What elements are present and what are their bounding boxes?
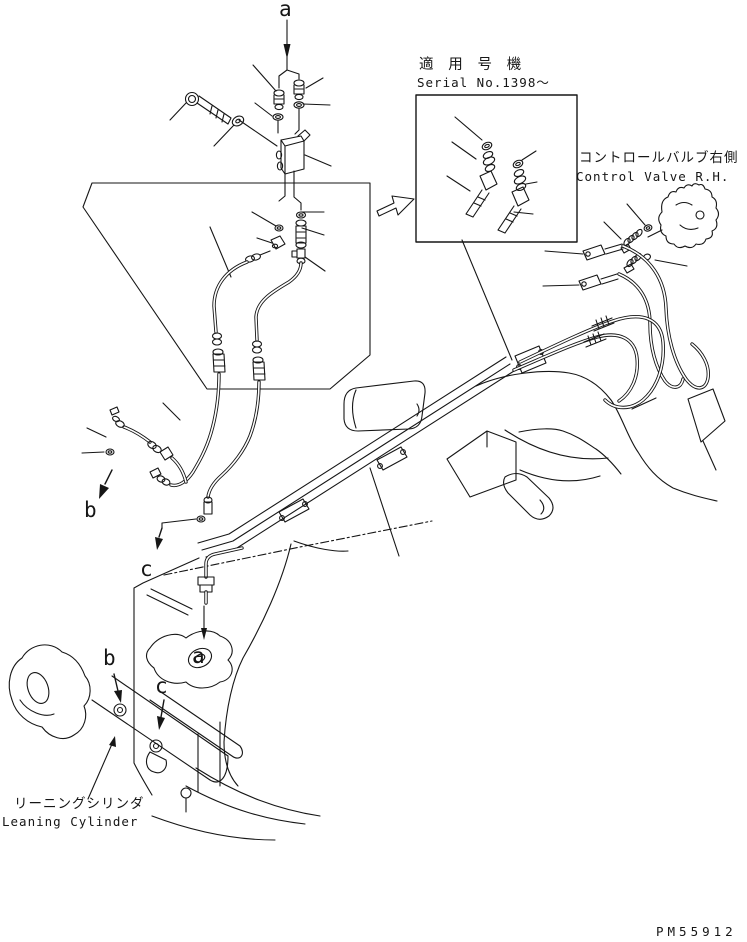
detail-box-fittings (447, 117, 537, 233)
arrow-down-icon (201, 628, 207, 640)
valve-block (239, 120, 331, 174)
machine-frame (134, 240, 725, 795)
serial-note: 適 用 号 機 Serial No.1398〜 (417, 55, 550, 90)
parts-diagram-page: a (0, 0, 747, 942)
arrow-down-icon (284, 44, 291, 59)
control-valve-body (648, 184, 719, 248)
callout-a-bottom-label: a (192, 644, 205, 668)
tube-clamp (377, 447, 407, 470)
cylinder-port-c (147, 740, 167, 773)
control-valve-label-jp: コントロールバルブ右側 (579, 149, 739, 166)
arrow-icon (157, 716, 165, 730)
hose-cluster (82, 403, 186, 486)
top-callout-a: a (279, 0, 292, 70)
detail-box (416, 95, 577, 242)
serial-note-serial-en: Serial No.1398〜 (417, 75, 550, 90)
right-hoses (514, 246, 708, 408)
tube-run (198, 346, 546, 557)
serial-note-title-jp: 適 用 号 機 (419, 55, 524, 73)
callout-b-cylinder-label: b (103, 646, 116, 670)
mounting-bolt (170, 93, 245, 147)
control-valve-fittings (543, 204, 687, 290)
arrow-icon (114, 690, 122, 703)
callout-b-cylinder: b (103, 646, 122, 703)
upper-pipe-assembly (253, 65, 330, 134)
callout-c-mid-label: c (140, 557, 153, 581)
parts-diagram-canvas: a (0, 0, 747, 942)
control-valve-label: コントロールバルブ右側 Control Valve R.H. (576, 149, 739, 184)
region-fittings (210, 171, 325, 277)
callout-c-cylinder-label: c (155, 674, 168, 698)
detail-callout-arrow-icon (377, 196, 414, 216)
cylinder-port-b (114, 704, 126, 716)
drawing-number: PM55912 (656, 924, 737, 939)
arrow-icon (109, 736, 116, 747)
callout-c-cylinder: c (155, 674, 168, 730)
arrow-icon (99, 484, 109, 499)
arrow-icon (155, 537, 163, 550)
callout-b-mid: b (84, 470, 112, 522)
elbow-tube-a (198, 548, 242, 603)
callout-a-top-label: a (279, 0, 292, 21)
leaning-cylinder-label-jp: リーニングシリンダ (14, 796, 145, 812)
callout-b-mid-label: b (84, 498, 97, 522)
region-outline (83, 183, 370, 389)
control-valve-label-en: Control Valve R.H. (576, 169, 729, 184)
leaning-cylinder-label-en: Leaning Cylinder (2, 814, 138, 829)
cylinder-label: リーニングシリンダ Leaning Cylinder (2, 736, 145, 829)
